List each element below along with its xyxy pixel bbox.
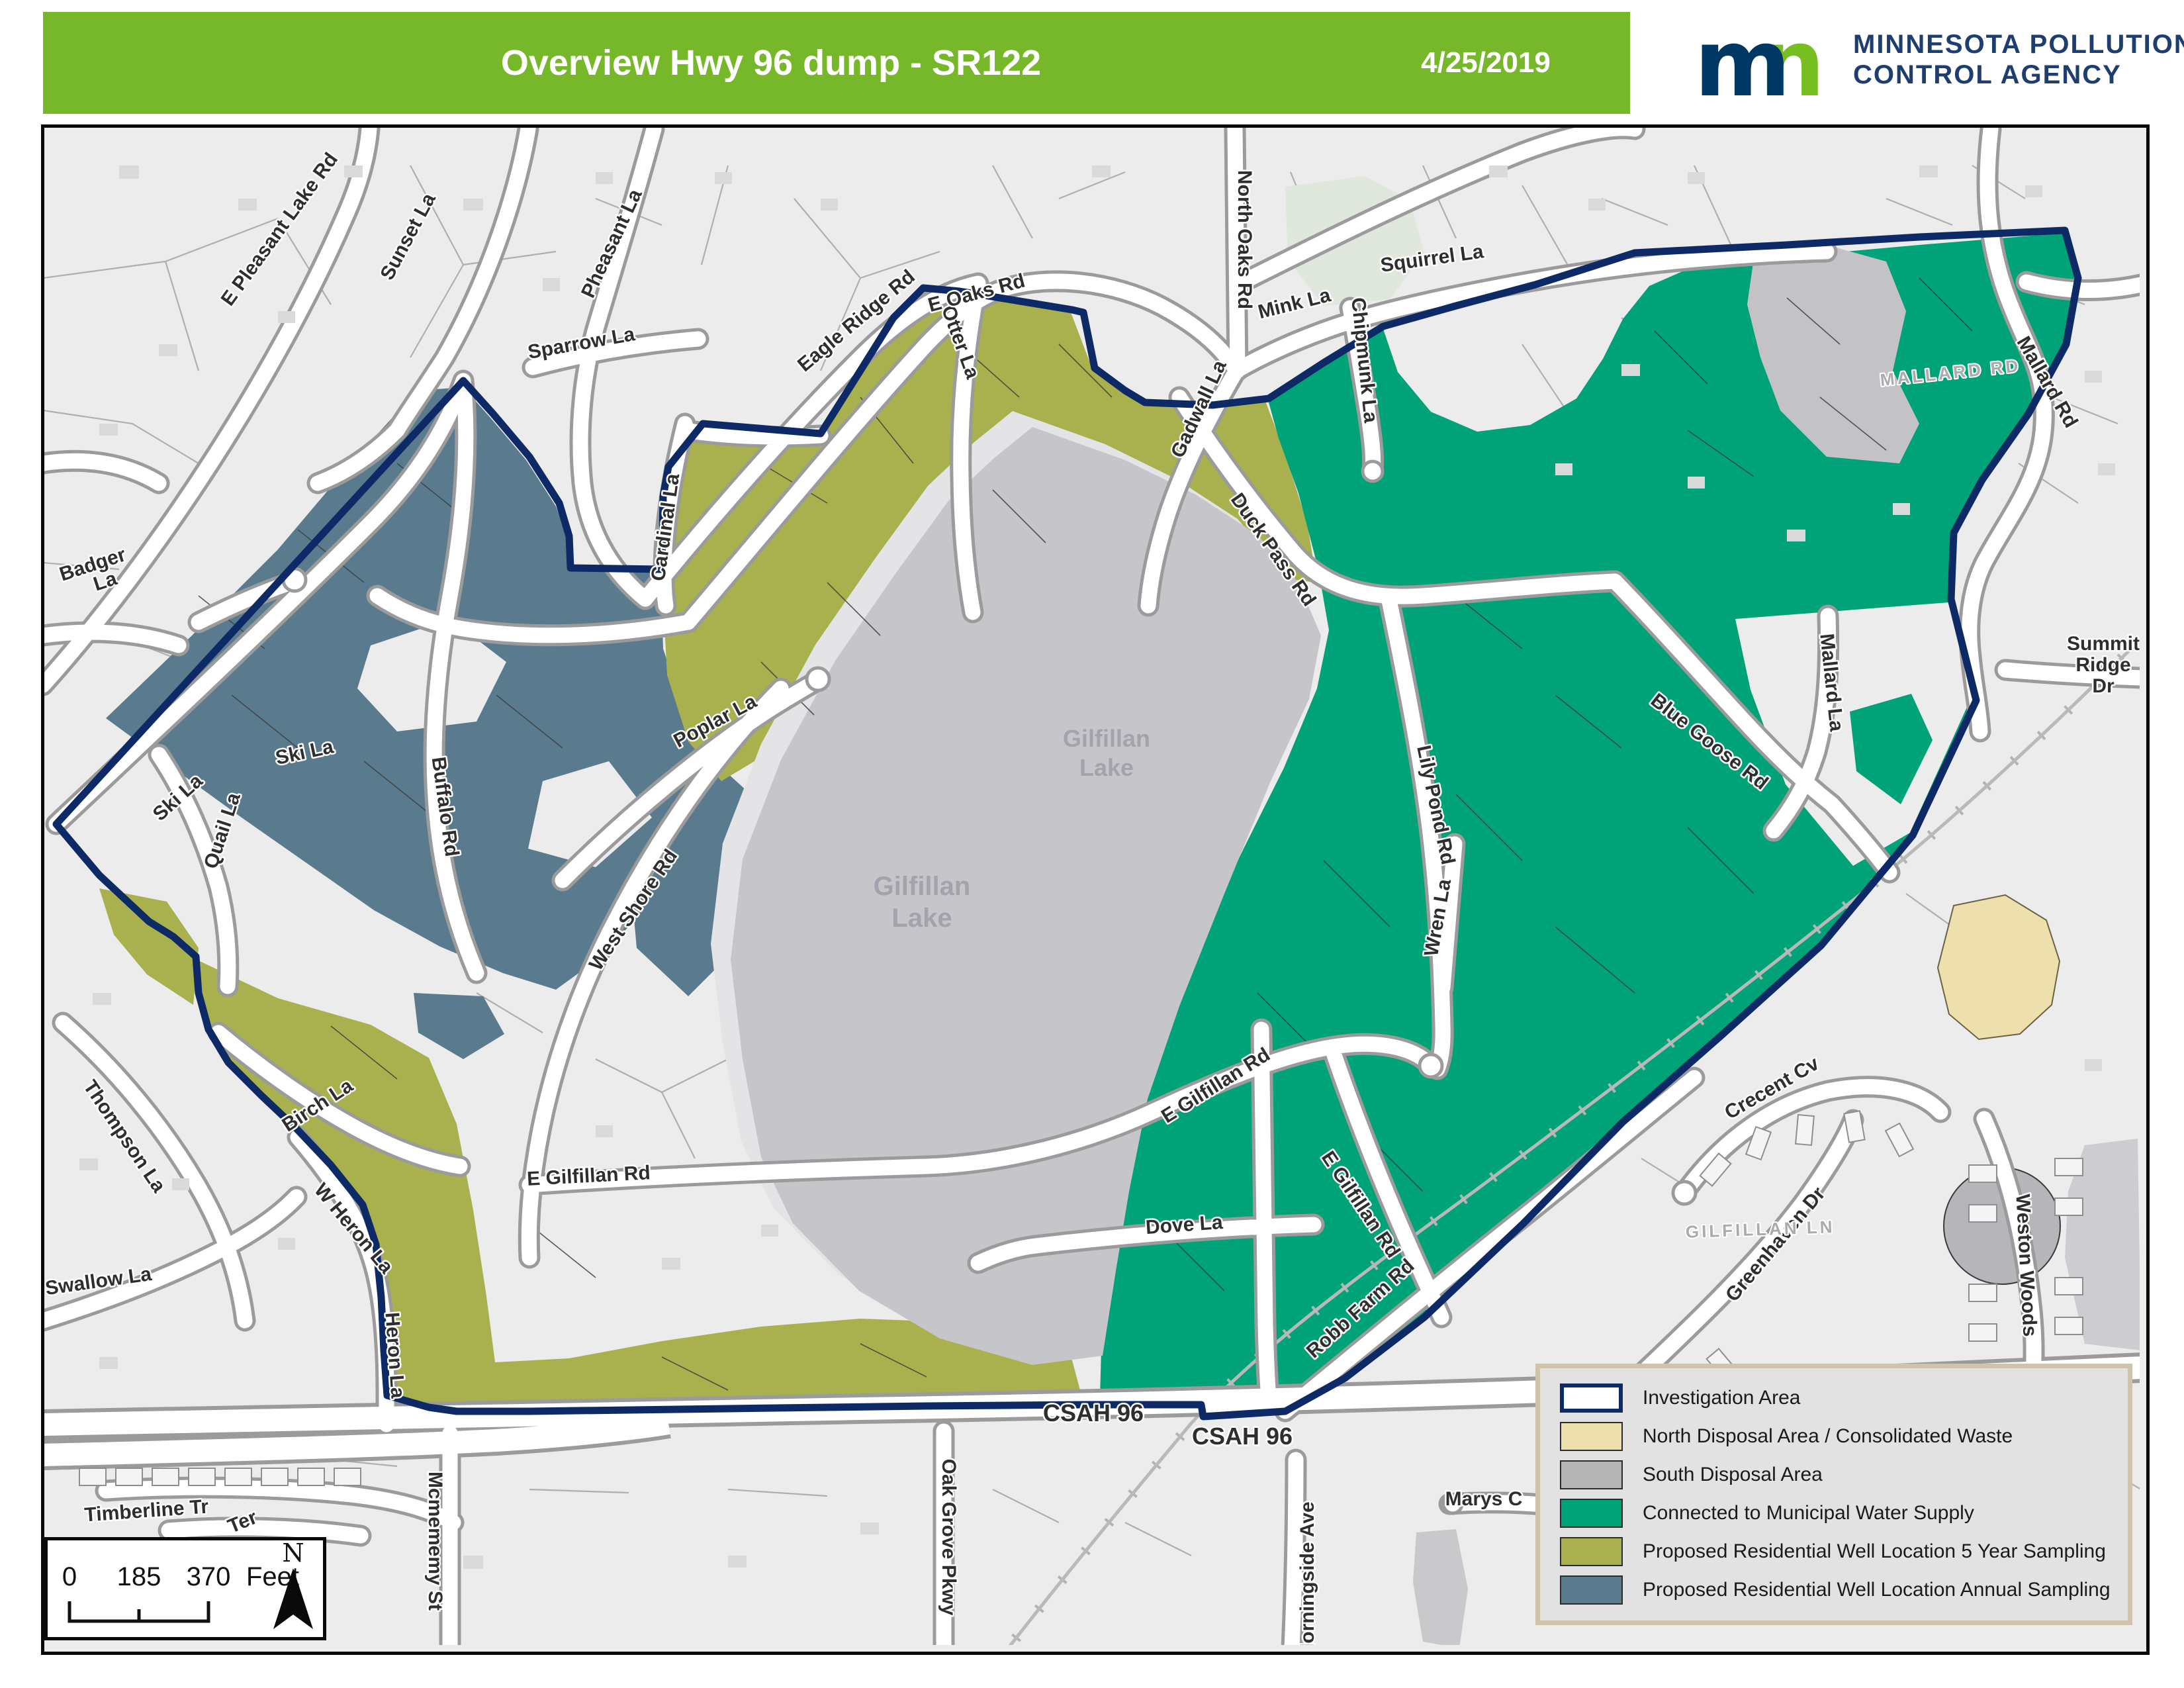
legend-label: Investigation Area (1643, 1387, 1801, 1409)
scale-bar: 0 185 370 Feet N (48, 1540, 323, 1637)
north-letter: N (282, 1540, 304, 1568)
agency-line2: CONTROL AGENCY (1853, 60, 2184, 90)
scale-bar-box: 0 185 370 Feet N (44, 1537, 326, 1640)
legend-label: Proposed Residential Well Location Annua… (1643, 1579, 2111, 1601)
legend-item-well-5yr: Proposed Residential Well Location 5 Yea… (1560, 1532, 2128, 1571)
legend-swatch-well-annual (1560, 1575, 1623, 1605)
road-label-morningside-ave: Morningside Ave (1297, 1501, 1318, 1645)
road-label-north-oaks-rd: North Oaks Rd (1234, 170, 1255, 309)
zone-well-annual-sampling-south (414, 993, 504, 1059)
scale-bar-bracket (69, 1601, 208, 1621)
road-label-mcmememy-st: Mcmememy St (424, 1472, 446, 1611)
page: { "header": { "title": "Overview Hwy 96 … (0, 0, 2184, 1688)
map-legend: Investigation Area North Disposal Area /… (1535, 1364, 2132, 1625)
south-pond (1413, 1529, 1468, 1645)
legend-label: North Disposal Area / Consolidated Waste (1643, 1425, 2013, 1448)
legend-label: Connected to Municipal Water Supply (1643, 1502, 1974, 1524)
agency-line1: MINNESOTA POLLUTION (1853, 29, 2184, 60)
scale-zero: 0 (62, 1562, 77, 1591)
legend-swatch-north-disposal (1560, 1422, 1623, 1451)
road-label-sunset-la: Sunset La (376, 189, 440, 283)
scale-mid: 185 (117, 1562, 161, 1591)
mpca-logo: n m MINNESOTA POLLUTION CONTROL AGENCY (1694, 17, 2171, 117)
legend-item-south-disposal: South Disposal Area (1560, 1456, 2128, 1494)
legend-item-investigation-area: Investigation Area (1560, 1379, 2128, 1417)
legend-item-well-annual: Proposed Residential Well Location Annua… (1560, 1571, 2128, 1609)
road-label-mink-la: Mink La (1256, 284, 1334, 323)
road-label-csah96-b: CSAH 96 (1192, 1423, 1293, 1450)
header-bar: Overview Hwy 96 dump - SR122 4/25/2019 (43, 12, 1630, 114)
legend-label: South Disposal Area (1643, 1464, 1823, 1486)
road-label-gilfillan-ln-faint: GILFILLAN LN (1685, 1217, 1835, 1242)
road-label-marys-c: Marys C (1445, 1488, 1523, 1510)
agency-name: MINNESOTA POLLUTION CONTROL AGENCY (1853, 29, 2184, 90)
mn-logo-icon: n m (1694, 17, 1846, 117)
logo-m-glyph: m (1694, 17, 1791, 117)
scale-max: 370 (187, 1562, 231, 1591)
road-label-oak-grove-pkwy: Oak Grove Pkwy (938, 1459, 960, 1616)
page-title: Overview Hwy 96 dump - SR122 (334, 12, 1208, 114)
map-frame: E Pleasant Lake Rd Sunset La Sparrow La … (41, 124, 2150, 1655)
legend-swatch-municipal-water (1560, 1499, 1623, 1528)
legend-swatch-south-disposal (1560, 1460, 1623, 1489)
zone-north-disposal-area (1938, 895, 2060, 1039)
legend-item-municipal-water: Connected to Municipal Water Supply (1560, 1494, 2128, 1532)
map-date: 4/25/2019 (1387, 12, 1585, 114)
legend-item-north-disposal: North Disposal Area / Consolidated Waste (1560, 1417, 2128, 1456)
road-label-csah96-a: CSAH 96 (1043, 1399, 1144, 1427)
legend-swatch-investigation-area (1560, 1383, 1623, 1413)
road-label-greenhaven-dr: Greenhaven Dr (1721, 1183, 1830, 1306)
legend-swatch-well-5yr (1560, 1537, 1623, 1566)
legend-label: Proposed Residential Well Location 5 Yea… (1643, 1540, 2106, 1563)
